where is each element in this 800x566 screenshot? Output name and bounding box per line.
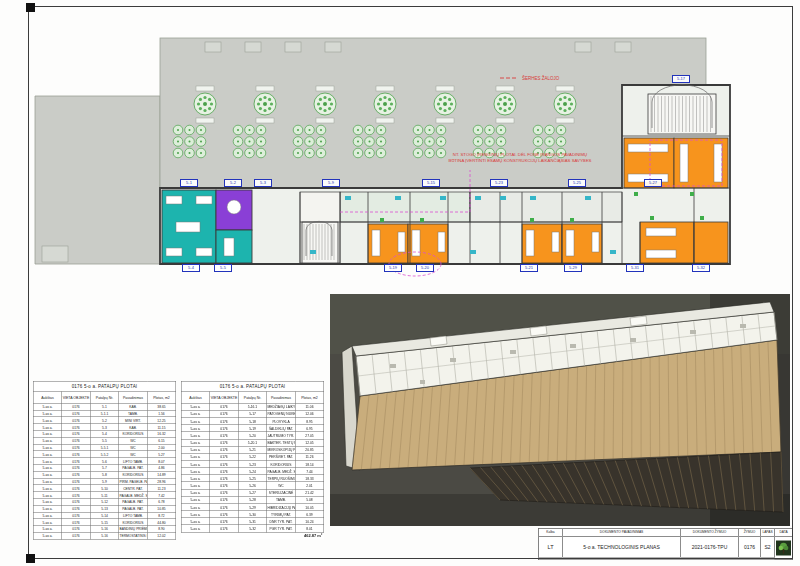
table-cell: 0176: [62, 512, 91, 519]
table-cell: 5-27: [238, 489, 267, 496]
table-cell: 5-as a.: [33, 437, 62, 444]
drawing-sheet: ŠERHES ŽALOJO NT. STOGO ĮRENGINIŲ PLOTAI…: [0, 0, 800, 566]
table-row: 5-as a.01765-32PGR TYR. PAT.8.01: [181, 525, 324, 532]
table-cell: TERPIŲ RUOŠIMO PAT.: [267, 475, 296, 482]
table-cell: 16.32: [147, 430, 176, 437]
table-cell: HIBRIDIZACIJŲ PAT.: [267, 503, 296, 510]
table-cell: 0176: [210, 453, 239, 460]
table-cell: CENTR. PAT.: [119, 485, 148, 492]
table-cell: 10.85: [147, 505, 176, 512]
table-cell: KAB.: [119, 403, 148, 410]
lapas-value: S2: [761, 537, 775, 558]
table-row: 5-as a.01765-9PIRM. PAGELB. PAT.28.96: [33, 478, 176, 485]
table-cell: 8.01: [295, 525, 324, 532]
table-cell: 8.90: [147, 526, 176, 533]
table-cell: 5.08: [295, 496, 324, 503]
col-vieta: VIETA OBJEKTE: [210, 392, 239, 404]
table-cell: 5-1: [90, 403, 119, 410]
total-area: 462.87 m²: [181, 532, 324, 539]
table-title: 0176 5-o a. PATALPŲ PLOTAI: [181, 381, 324, 392]
table-cell: WC: [267, 482, 296, 489]
title-block: Kalba DOKUMENTO PAVADINIMAS DOKUMENTO ŽY…: [538, 528, 793, 560]
table-cell: 4.86: [147, 464, 176, 471]
table-cell: 5-16.1: [238, 403, 267, 410]
table-cell: PAGALB. PAT.: [119, 505, 148, 512]
table-cell: 6.95: [295, 425, 324, 432]
area-table-right: 0176 5-o a. PATALPŲ PLOTAI Aukštas VIETA…: [181, 381, 324, 539]
table-cell: 5-as a.: [181, 503, 210, 510]
table-cell: 5-6: [90, 458, 119, 465]
table-cell: 0176: [210, 511, 239, 518]
table-cell: 5-5: [90, 437, 119, 444]
table-cell: 5-as a.: [33, 471, 62, 478]
table-row: 5-as a.01765-16BANDINIŲ PRIĖMIMO PAT.8.9…: [33, 526, 176, 533]
doc-name-label: DOKUMENTO PAVADINIMAS: [563, 529, 681, 537]
table-cell: 0176: [210, 518, 239, 525]
table-row: 5-as a.01765-2MINI VIRT.12.25: [33, 417, 176, 424]
table-cell: TERMOSTATINIS KAB.: [119, 532, 148, 539]
table-cell: 27.05: [295, 432, 324, 439]
table-row: 5-as a.01765-25TERPIŲ RUOŠIMO PAT.18.33: [181, 475, 324, 482]
table-row: 5-as a.01765-6LIFTO TAMB.8.07: [33, 458, 176, 465]
table-cell: 5-as a.: [181, 475, 210, 482]
table-row: 5-as a.01765-31DNR TYR. PAT.10.24: [181, 518, 324, 525]
table-cell: 0176: [210, 418, 239, 425]
table-row: 5-as a.01765-22PERŠVIET. PAT.11.26: [181, 453, 324, 460]
table-cell: 5-19: [238, 425, 267, 432]
table-title: 0176 5-o a. PATALPŲ PLOTAI: [33, 381, 176, 392]
table-cell: 5-as a.: [33, 417, 62, 424]
doc-name-value: 5-o a. TECHNOLOGINIS PLANAS: [563, 537, 681, 558]
doc-code-value: 2021-0176-TPU: [681, 537, 739, 558]
table-cell: 0176: [210, 482, 239, 489]
table-cell: 5-as a.: [181, 496, 210, 503]
table-cell: PGR TYR. PAT.: [267, 525, 296, 532]
table-cell: 5-32: [238, 525, 267, 532]
table-cell: TYRIMŲ PAT.: [267, 511, 296, 518]
col-pavadinimas: Pavadinimas: [119, 392, 148, 404]
table-row: 5-as a.01765-8KORIDORIUS14.89: [33, 471, 176, 478]
table-row: 5-as a.01765-11PAGALB. MEDŽ. SAND.7.42: [33, 492, 176, 499]
table-cell: 0176: [210, 425, 239, 432]
table-cell: 0176: [62, 526, 91, 533]
table-cell: 0176: [62, 471, 91, 478]
col-aukstas: Aukštas: [33, 392, 62, 404]
floor-plan: ŠERHES ŽALOJO NT. STOGO ĮRENGINIŲ PLOTAI…: [0, 0, 800, 300]
table-row: 5-as a.01765-1KAB.38.65: [33, 403, 176, 410]
table-cell: 12.25: [147, 417, 176, 424]
table-cell: LIFTO TAMB.: [119, 458, 148, 465]
table-cell: 5-11: [90, 492, 119, 499]
table-row: 5-as a.01765-20.1BAKTER. TESTŲ PAT.12.05: [181, 439, 324, 446]
table-cell: 5-as a.: [33, 519, 62, 526]
col-vieta: VIETA OBJEKTE: [62, 392, 91, 404]
table-cell: PERŠVIET. PAT.: [267, 453, 296, 460]
table-cell: 5-2: [90, 417, 119, 424]
table-row: 5-as a.01765-28TAMB.5.08: [181, 496, 324, 503]
table-cell: 0176: [210, 403, 239, 410]
table-cell: 8.95: [295, 418, 324, 425]
table-cell: 0176: [62, 498, 91, 505]
col-plotas: Plotas, m2: [295, 392, 324, 404]
table-cell: 5-as a.: [181, 511, 210, 518]
table-cell: 28.96: [147, 478, 176, 485]
table-cell: 11.06: [295, 403, 324, 410]
table-cell: 18.14: [295, 461, 324, 468]
table-cell: TAMB.: [119, 410, 148, 417]
col-aukstas: Aukštas: [181, 392, 210, 404]
table-cell: 0176: [210, 503, 239, 510]
table-cell: 5-9: [90, 478, 119, 485]
table-cell: 5-as a.: [181, 518, 210, 525]
table-cell: 5-as a.: [33, 526, 62, 533]
table-cell: KAB.: [119, 424, 148, 431]
table-row: 5-as a.01765-21MIKROSKOPIJŲ PAT.20.85: [181, 446, 324, 453]
table-cell: 5-as a.: [181, 439, 210, 446]
table-cell: KORIDORIUS: [267, 461, 296, 468]
table-cell: PATOGENŲ NUKENKSMINIMO PAT.: [267, 410, 296, 417]
table-cell: WC: [119, 437, 148, 444]
table-cell: 5-30: [238, 511, 267, 518]
table-cell: 5-24: [238, 468, 267, 475]
table-cell: 5-1.1: [90, 410, 119, 417]
table-cell: 5-as a.: [33, 505, 62, 512]
table-cell: 0176: [210, 410, 239, 417]
table-cell: 5-as a.: [33, 478, 62, 485]
table-cell: 5-as a.: [181, 446, 210, 453]
table-cell: 5-as a.: [181, 482, 210, 489]
table-cell: 5-as a.: [33, 424, 62, 431]
zymuo-label: ŽYMUO: [739, 529, 761, 537]
table-cell: 0176: [62, 417, 91, 424]
table-cell: 5-29: [238, 503, 267, 510]
table-cell: KORIDORIUS: [119, 471, 148, 478]
table-cell: 5-as a.: [181, 418, 210, 425]
table-row: 5-as a.01765-4KORIDORIUS16.32: [33, 430, 176, 437]
data-label: DATA: [775, 529, 793, 537]
table-cell: 0176: [62, 478, 91, 485]
table-cell: PAGALB. MEDŽ. SAND.: [267, 468, 296, 475]
table-cell: 5-as a.: [33, 451, 62, 458]
zymuo-value: 0176: [739, 537, 761, 558]
doc-code-label: DOKUMENTO ŽYMUO: [681, 529, 739, 537]
table-cell: 0176: [210, 446, 239, 453]
table-cell: 0176: [62, 505, 91, 512]
red-note-top: ŠERHES ŽALOJO: [522, 74, 560, 81]
table-cell: 0176: [62, 519, 91, 526]
kalba-value: LT: [539, 537, 563, 558]
table-row: 5-as a.01765-3KAB.11.15: [33, 424, 176, 431]
table-row: 5-as a.01765-13PAGALB. PAT.10.85: [33, 505, 176, 512]
table-row: 5-as a.01765-15KORIDORIUS44.80: [33, 519, 176, 526]
table-cell: MINI VIRT.: [119, 417, 148, 424]
table-cell: 5-as a.: [33, 458, 62, 465]
table-cell: 5-as a.: [33, 403, 62, 410]
table-row: 5-as a.01765-5WC6.15: [33, 437, 176, 444]
table-cell: 5-as a.: [33, 485, 62, 492]
table-cell: PAGALB. MEDŽ. SAND.: [119, 492, 148, 499]
table-cell: 5-28: [238, 496, 267, 503]
table-cell: 5-20: [238, 432, 267, 439]
table-row: 5-as a.01765-12PAGALB. PAT.6.78: [33, 498, 176, 505]
table-cell: 5-as a.: [181, 432, 210, 439]
table-cell: 0176: [210, 432, 239, 439]
table-cell: 5-as a.: [181, 410, 210, 417]
table-cell: 5-10: [90, 485, 119, 492]
table-cell: 5-as a.: [181, 425, 210, 432]
table-cell: 5-as a.: [33, 492, 62, 499]
table-cell: 6.78: [147, 498, 176, 505]
table-cell: 6.15: [147, 437, 176, 444]
table-cell: 5.27: [147, 451, 176, 458]
table-row: 5-as a.01765-1.1TAMB.1.56: [33, 410, 176, 417]
table-cell: 5-as a.: [181, 461, 210, 468]
table-cell: 5-13: [90, 505, 119, 512]
table-cell: 0176: [62, 532, 91, 539]
table-cell: 18.33: [295, 475, 324, 482]
table-cell: 0176: [210, 475, 239, 482]
col-nr: Patalpų Nr.: [90, 392, 119, 404]
table-cell: 0176: [210, 489, 239, 496]
table-cell: 5-as a.: [33, 430, 62, 437]
table-cell: WC: [119, 451, 148, 458]
table-cell: 8.72: [147, 512, 176, 519]
table-cell: ŠALDIKLIŲ PAT.: [267, 425, 296, 432]
table-cell: 5-21: [238, 446, 267, 453]
table-row: 5-as a.01765-16.1MEDŽIAGŲ LAIKYMO PAT.11…: [181, 403, 324, 410]
table-cell: 0176: [210, 439, 239, 446]
table-cell: 5-as a.: [33, 512, 62, 519]
col-plotas: Plotas, m2: [147, 392, 176, 404]
table-cell: 5-22: [238, 453, 267, 460]
table-cell: BANDINIŲ PRIĖMIMO PAT.: [119, 526, 148, 533]
table-cell: 0176: [62, 492, 91, 499]
table-row: 5-as a.01765-24PAGALB. MEDŽ. SAND.7.44: [181, 468, 324, 475]
table-cell: 0176: [62, 458, 91, 465]
table-cell: 5-16: [90, 526, 119, 533]
kalba-label: Kalba: [539, 529, 563, 537]
table-cell: 21.42: [295, 489, 324, 496]
red-note-line2: BŪTINA ĮVERTINTI ESAMŲ KONSTRUKCIJŲ LAIK…: [449, 158, 592, 163]
table-row: 5-as a.01765-29HIBRIDIZACIJŲ PAT.10.05: [181, 503, 324, 510]
table-cell: PLOVYKLA: [267, 418, 296, 425]
table-cell: 44.80: [147, 519, 176, 526]
table-cell: 5-as a.: [33, 532, 62, 539]
table-row: 5-as a.01765-26WC2.01: [181, 482, 324, 489]
table-cell: 5-as a.: [181, 468, 210, 475]
table-cell: PIRM. PAGELB. PAT.: [119, 478, 148, 485]
table-cell: 11.26: [295, 453, 324, 460]
table-cell: 0176: [62, 444, 91, 451]
table-cell: 5-as a.: [33, 410, 62, 417]
table-cell: 5-5.1: [90, 444, 119, 451]
red-note-line1: NT. STOGO ĮRENGINIŲ PLOTAI. DĖL FONE ĮRA…: [453, 152, 587, 157]
table-cell: 1.56: [147, 410, 176, 417]
table-cell: 5-18: [238, 418, 267, 425]
table-cell: 8.07: [147, 458, 176, 465]
table-cell: 5-4: [90, 430, 119, 437]
table-cell: MEDŽIAGŲ LAIKYMO PAT.: [267, 403, 296, 410]
axonometric-view: [330, 294, 790, 526]
table-cell: 5-as a.: [181, 489, 210, 496]
table-cell: 0176: [62, 403, 91, 410]
table-cell: PAGALB. PAT.: [119, 464, 148, 471]
table-row: 5-as a.01765-27STERILIZACINĖ21.42: [181, 489, 324, 496]
table-row: 5-as a.01765-16TERMOSTATINIS KAB.12.02: [33, 532, 176, 539]
table-cell: 38.65: [147, 403, 176, 410]
table-cell: MIKROSKOPIJŲ PAT.: [267, 446, 296, 453]
table-cell: 5-3: [90, 424, 119, 431]
table-row: 5-as a.01765-30TYRIMŲ PAT.6.39: [181, 511, 324, 518]
registration-mark-bottom: [26, 554, 35, 563]
table-cell: 5-7: [90, 464, 119, 471]
table-cell: 0176: [62, 464, 91, 471]
table-cell: 0176: [62, 430, 91, 437]
table-cell: 0176: [62, 410, 91, 417]
table-cell: 5-26: [238, 482, 267, 489]
table-cell: 14.89: [147, 471, 176, 478]
table-cell: 10.24: [295, 518, 324, 525]
table-cell: 5-as a.: [181, 453, 210, 460]
table-row: 5-as a.01765-5.1WC2.00: [33, 444, 176, 451]
table-cell: 11.23: [147, 485, 176, 492]
table-cell: 12.02: [147, 532, 176, 539]
table-row: 5-as a.01765-20JAUTRUMO TYR. PAT.27.05: [181, 432, 324, 439]
table-cell: 0176: [62, 424, 91, 431]
table-cell: TAMB.: [267, 496, 296, 503]
table-cell: 5-25: [238, 475, 267, 482]
table-cell: 5-5.2: [90, 451, 119, 458]
table-cell: PAGALB. PAT.: [119, 498, 148, 505]
table-cell: 10.05: [295, 503, 324, 510]
table-cell: 11.15: [147, 424, 176, 431]
table-cell: 0176: [62, 451, 91, 458]
table-cell: 2.01: [295, 482, 324, 489]
table-cell: 5-31: [238, 518, 267, 525]
table-row: 5-as a.01765-10CENTR. PAT.11.23: [33, 485, 176, 492]
table-cell: 5-as a.: [181, 525, 210, 532]
table-row: 5-as a.01765-19ŠALDIKLIŲ PAT.6.95: [181, 425, 324, 432]
table-row: 5-as a.01765-23KORIDORIUS18.14: [181, 461, 324, 468]
col-pavadinimas: Pavadinimas: [267, 392, 296, 404]
green-tree-logo-icon: [775, 537, 793, 560]
table-cell: 0176: [210, 461, 239, 468]
table-cell: 5-as a.: [33, 444, 62, 451]
table-cell: 5-16: [90, 532, 119, 539]
table-cell: 20.85: [295, 446, 324, 453]
table-cell: KORIDORIUS: [119, 430, 148, 437]
table-cell: LIFTO TAMB.: [119, 512, 148, 519]
table-row: 5-as a.01765-18PLOVYKLA8.95: [181, 418, 324, 425]
table-cell: 5-as a.: [181, 403, 210, 410]
table-cell: 5-as a.: [33, 464, 62, 471]
table-cell: 0176: [210, 468, 239, 475]
table-cell: 12.05: [295, 439, 324, 446]
table-cell: 0176: [62, 485, 91, 492]
table-cell: 6.39: [295, 511, 324, 518]
table-cell: 2.00: [147, 444, 176, 451]
table-cell: KORIDORIUS: [119, 519, 148, 526]
table-row: 5-as a.01765-17PATOGENŲ NUKENKSMINIMO PA…: [181, 410, 324, 417]
table-cell: JAUTRUMO TYR. PAT.: [267, 432, 296, 439]
table-cell: 7.44: [295, 468, 324, 475]
table-cell: 7.42: [147, 492, 176, 499]
table-cell: 5-8: [90, 471, 119, 478]
area-table-left: 0176 5-o a. PATALPŲ PLOTAI Aukštas VIETA…: [33, 381, 176, 539]
table-cell: 0176: [62, 437, 91, 444]
table-cell: 5-15: [90, 519, 119, 526]
table-row: 5-as a.01765-7PAGALB. PAT.4.86: [33, 464, 176, 471]
lapas-label: LAPAS: [761, 529, 775, 537]
table-cell: BAKTER. TESTŲ PAT.: [267, 439, 296, 446]
table-cell: WC: [119, 444, 148, 451]
table-cell: 12.06: [295, 410, 324, 417]
table-cell: 0176: [210, 496, 239, 503]
table-row: 5-as a.01765-5.2WC5.27: [33, 451, 176, 458]
table-cell: 5-20.1: [238, 439, 267, 446]
table-cell: 5-12: [90, 498, 119, 505]
table-cell: STERILIZACINĖ: [267, 489, 296, 496]
col-nr: Patalpų Nr.: [238, 392, 267, 404]
table-cell: 5-14: [90, 512, 119, 519]
area-tables: 0176 5-o a. PATALPŲ PLOTAI Aukštas VIETA…: [33, 381, 324, 539]
registration-mark-top: [26, 3, 35, 12]
table-cell: 5-17: [238, 410, 267, 417]
table-cell: 0176: [210, 525, 239, 532]
table-cell: 5-as a.: [33, 498, 62, 505]
table-row: 5-as a.01765-14LIFTO TAMB.8.72: [33, 512, 176, 519]
table-cell: DNR TYR. PAT.: [267, 518, 296, 525]
table-cell: 5-23: [238, 461, 267, 468]
